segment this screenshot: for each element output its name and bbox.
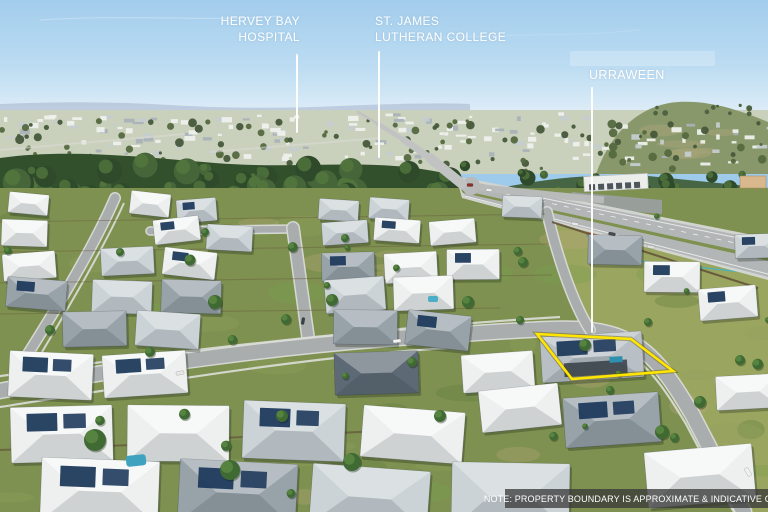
label-line: HOSPITAL <box>221 29 300 45</box>
disclaimer-note: NOTE: PROPERTY BOUNDARY IS APPROXIMATE &… <box>505 489 768 508</box>
label-urraween: URRAWEEN <box>589 67 665 83</box>
label-line: URRAWEEN <box>589 67 665 83</box>
watermark-box <box>570 51 715 66</box>
label-st-james-lutheran-college: ST. JAMES LUTHERAN COLLEGE <box>375 13 506 45</box>
label-line: ST. JAMES <box>375 13 506 29</box>
label-hervey-bay-hospital: HERVEY BAY HOSPITAL <box>221 13 300 45</box>
label-line: HERVEY BAY <box>221 13 300 29</box>
label-line: LUTHERAN COLLEGE <box>375 29 506 45</box>
